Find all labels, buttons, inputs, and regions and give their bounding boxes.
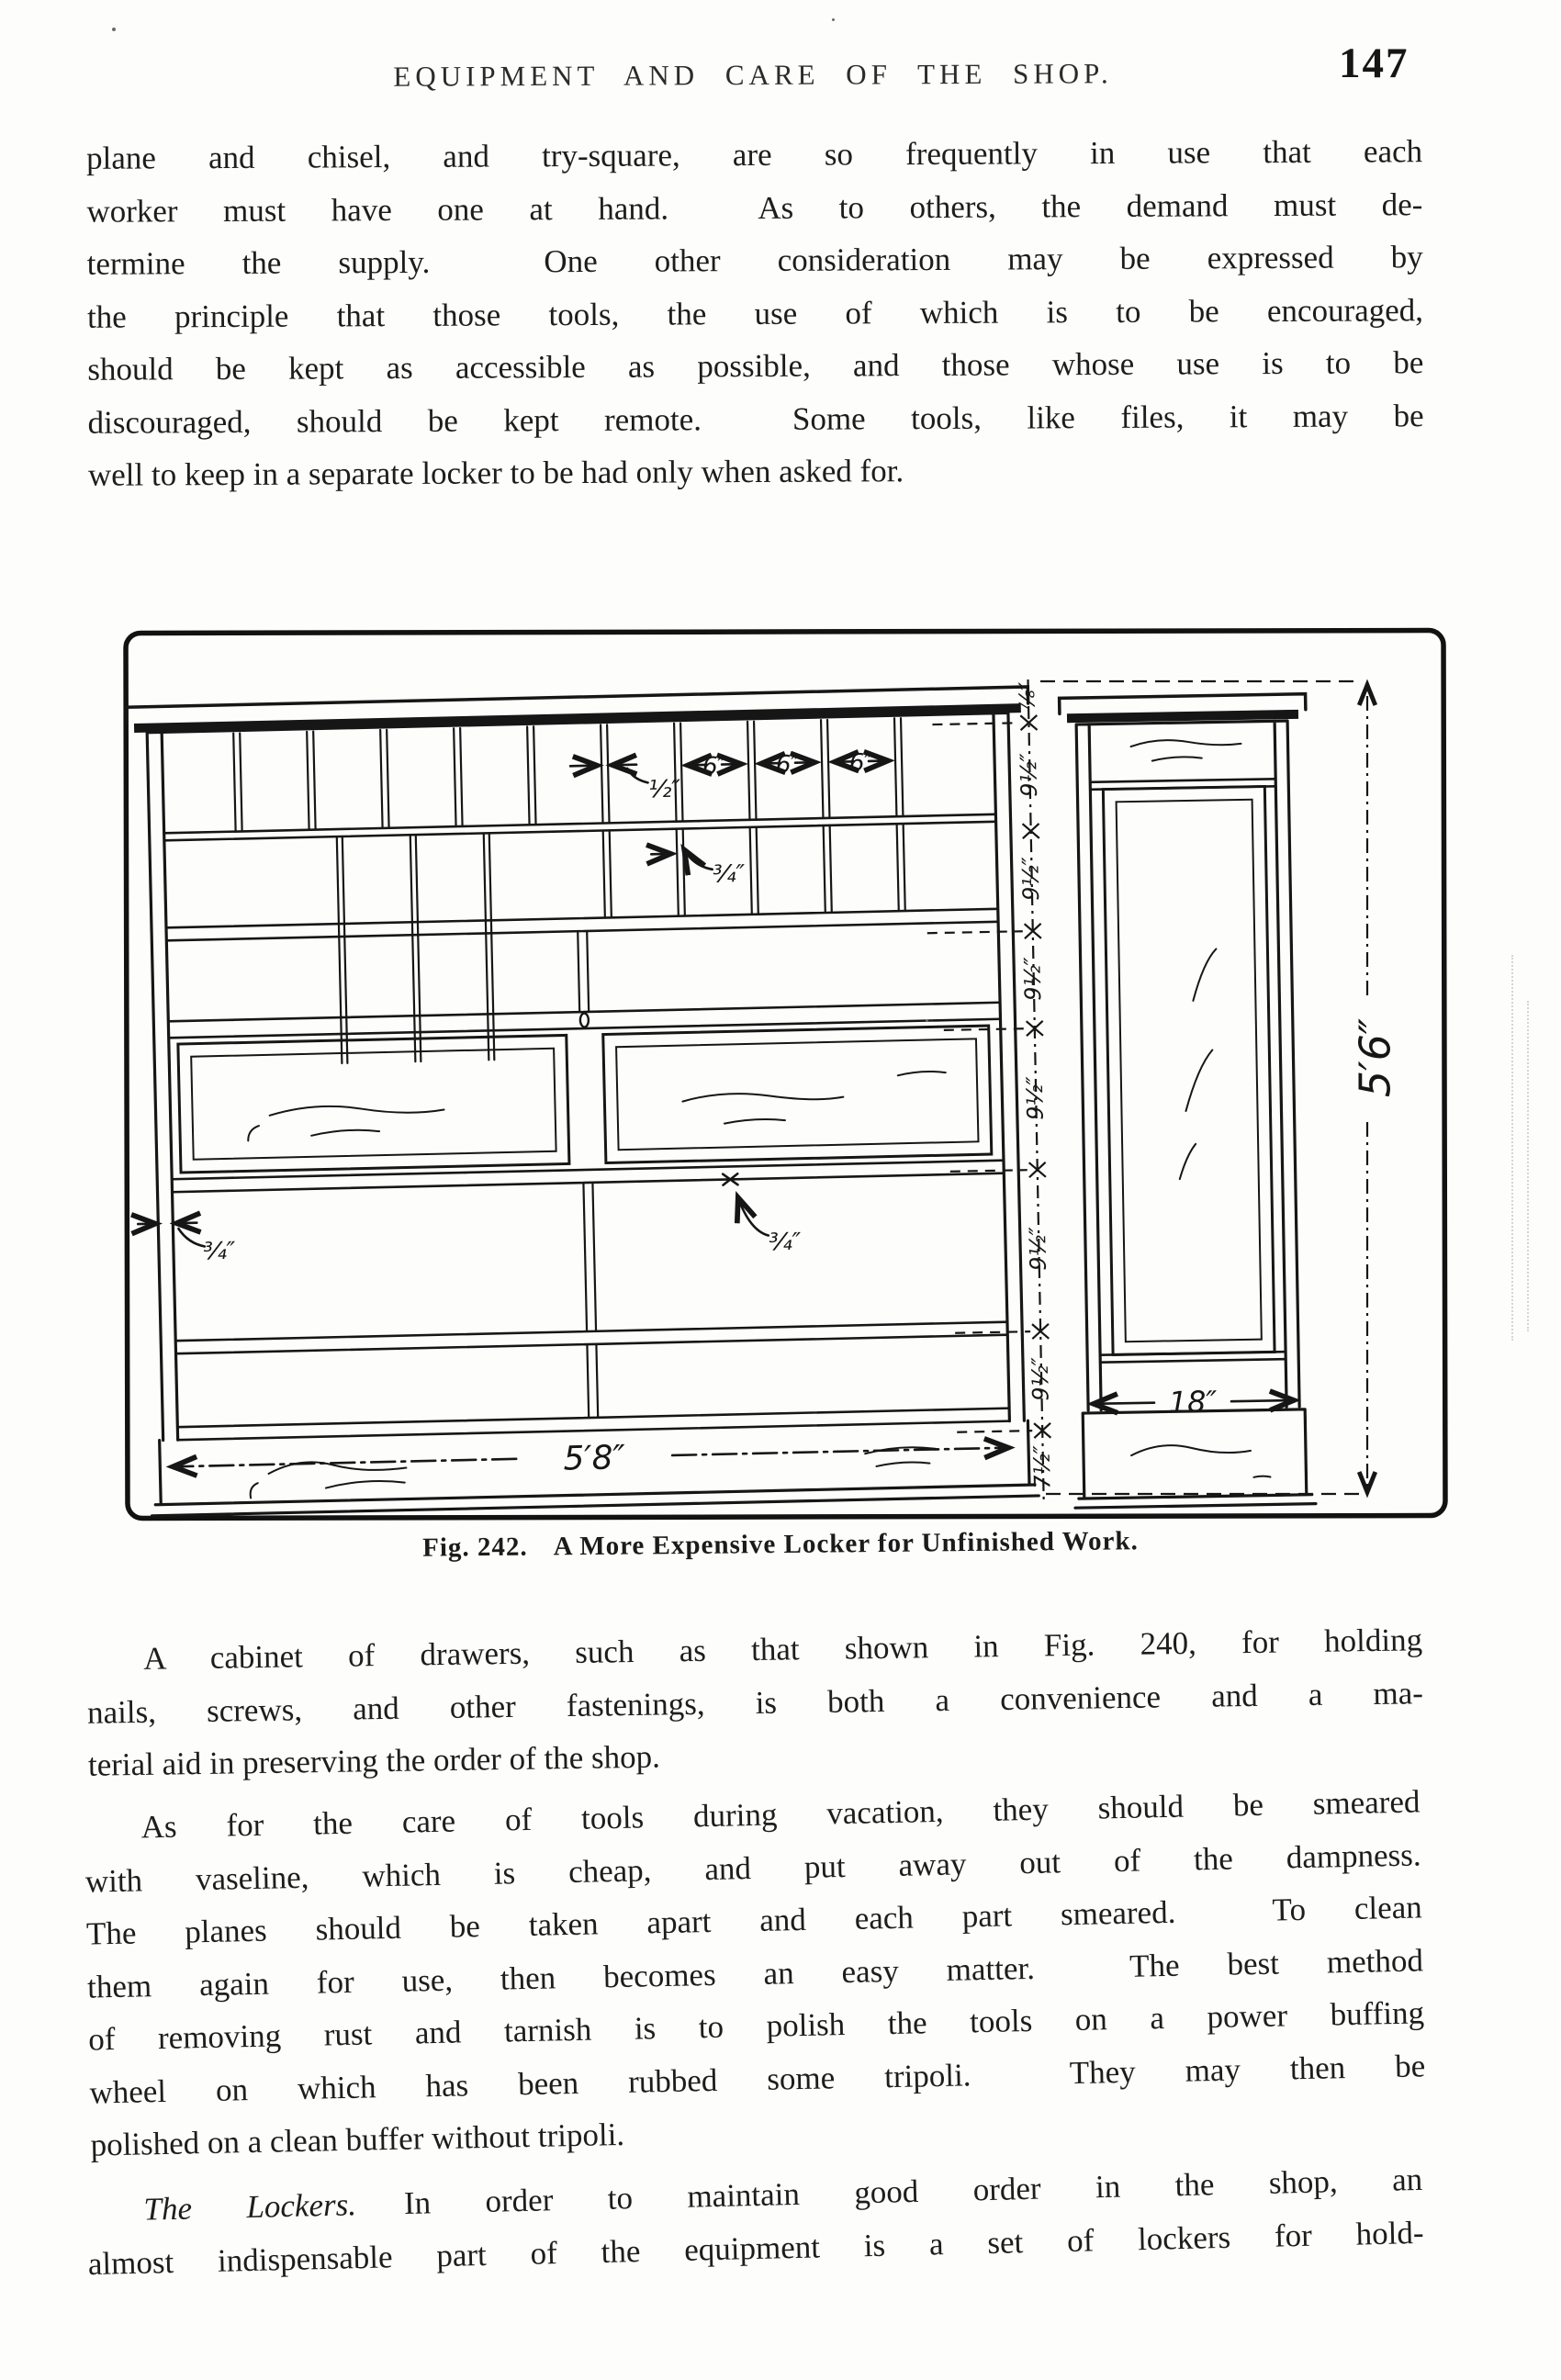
dim-label-board-thickness: ¾″ [203,1238,236,1266]
wood-grain [241,1072,955,1499]
front-slats-top-row [233,718,903,831]
scan-noise-line [1511,955,1513,1341]
dim-label-slat-width: ½″ [648,776,681,804]
dim-slat-spacing-2: 6″ [761,750,815,779]
book-page: EQUIPMENT AND CARE OF THE SHOP. 147 plan… [0,0,1561,2380]
text-line: worker must have one at hand. As to othe… [86,178,1422,238]
dim-label-overall-height: 5′6″ [1351,1018,1400,1097]
locker-side-view: 18″ [1060,694,1320,1509]
dim-label-shelf-spacing: 9½″ [1028,1357,1054,1401]
front-tool-slots [337,833,495,1063]
scan-speck [112,28,116,31]
dim-label-side-width: 18″ [1168,1384,1217,1420]
dim-label-board-thickness: ¾″ [769,1229,802,1257]
side-door [1103,786,1275,1354]
paragraph-4: The Lockers.In order to maintain good or… [86,2153,1424,2290]
drawer-left-panel [191,1049,556,1160]
page-header-title: EQUIPMENT AND CARE OF THE SHOP. [0,55,1506,95]
text-line: discouraged, should be kept remote. Some… [87,389,1423,449]
dim-label-shelf-spacing: 9½″ [1019,957,1046,1001]
dim-label-top-gap: ⅞″ [1016,681,1040,711]
dim-board-thickness-middle: ¾″ [723,1173,802,1258]
dim-label-shelf-spacing: 9½″ [1017,857,1044,901]
paragraph-lead-in: The Lockers. [143,2186,356,2227]
locker-front-view: ½″ 6″ 6″ 6″ ¾″ [127,687,1047,1516]
front-keyhole [580,1013,589,1027]
dim-label-slat-spacing: 6″ [849,749,874,778]
dim-label-shelf-spacing: 9½″ [1022,1076,1049,1120]
page-number: 147 [1339,39,1409,88]
text-line: the principle that those tools, the use … [87,284,1423,343]
text-line: termine the supply. One other considerat… [87,230,1423,290]
figure-caption-title: A More Expensive Locker for Unfinished W… [554,1526,1139,1561]
figure-drawing: ½″ 6″ 6″ 6″ ¾″ [122,626,1449,1524]
dim-slat-spacing-1: 6″ [688,752,742,780]
text-line: plane and chisel, and try-square, are so… [86,125,1422,185]
side-wood-grain [1118,738,1270,1479]
dim-front-width: 5′8″ [173,1431,1009,1487]
dim-label-front-width: 5′8″ [563,1439,626,1478]
paragraph-2: A cabinet of drawers, such as that shown… [86,1613,1424,1791]
dim-slat-width: ½″ [570,764,681,806]
side-bottom-rail [1100,1352,1286,1363]
dim-label-board-thickness: ¾″ [713,860,746,889]
text-line: should be kept as accessible as possible… [87,336,1423,396]
paragraph-1: plane and chisel, and try-square, are so… [86,125,1424,501]
dim-label-base-height: 7½″ [1029,1445,1056,1489]
dim-board-thickness-left: ¾″ [138,1222,236,1267]
dim-slat-spacing-3: 6″ [835,748,889,777]
dim-label-slat-spacing: 6″ [776,751,801,780]
figure-caption-number: Fig. 242. [422,1532,528,1563]
dim-board-thickness-upper: ¾″ [651,848,746,890]
dim-label-shelf-spacing: 9½″ [1025,1227,1051,1271]
dim-label-slat-spacing: 6″ [702,752,727,780]
front-slats-second-row [603,824,905,917]
scan-noise-line [1527,1001,1529,1331]
paragraph-3: As for the care of tools during vacation… [84,1775,1427,2172]
dim-label-shelf-spacing: 9½″ [1016,753,1042,797]
dim-side-width: 18″ [1094,1383,1295,1421]
side-door-panel [1117,800,1262,1342]
scan-speck [926,1019,928,1022]
scan-speck [832,18,835,21]
drawer-right-panel [616,1038,978,1150]
text-line: well to keep in a separate locker to be … [88,442,1424,501]
figure-caption: Fig. 242.A More Expensive Locker for Unf… [0,1522,1561,1567]
